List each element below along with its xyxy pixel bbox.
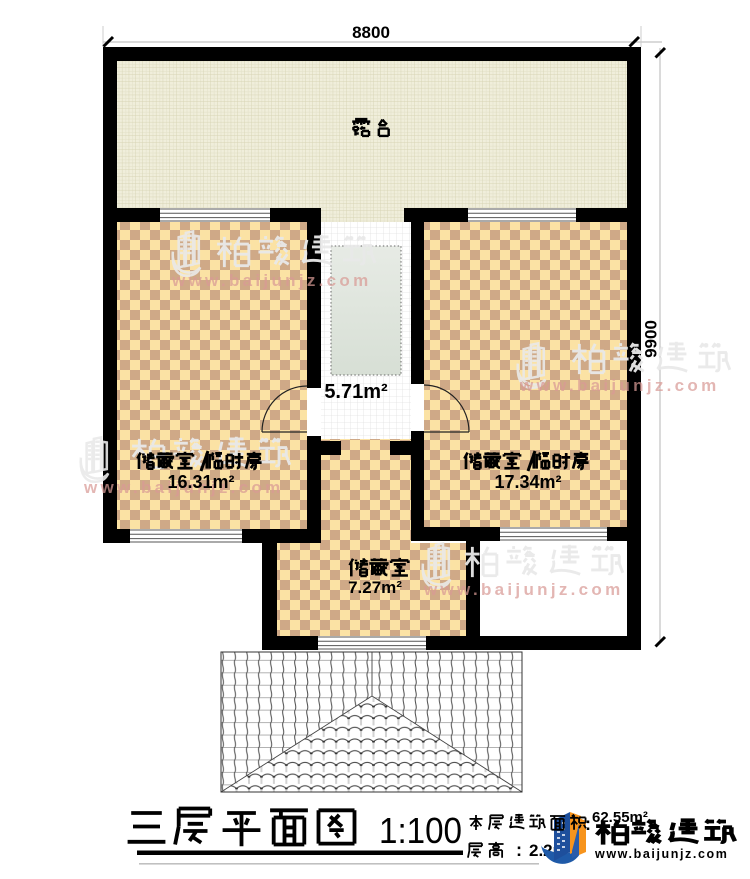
svg-text:8800: 8800: [352, 23, 390, 42]
svg-text:7.27m²: 7.27m²: [348, 578, 402, 597]
svg-text:www.baijunjz.com: www.baijunjz.com: [594, 847, 728, 861]
svg-text:9900: 9900: [642, 320, 661, 358]
svg-text:17.34m²: 17.34m²: [494, 472, 561, 492]
svg-text::: :: [516, 840, 522, 860]
svg-text:1:100: 1:100: [379, 810, 462, 851]
svg-text:www.baijunjz.com: www.baijunjz.com: [519, 376, 720, 395]
svg-text:16.31m²: 16.31m²: [167, 472, 234, 492]
svg-text:www.baijunjz.com: www.baijunjz.com: [171, 271, 372, 290]
svg-text::: :: [585, 814, 591, 834]
svg-text:www.baijunjz.com: www.baijunjz.com: [423, 580, 624, 599]
svg-text:5.71m²: 5.71m²: [324, 381, 388, 403]
